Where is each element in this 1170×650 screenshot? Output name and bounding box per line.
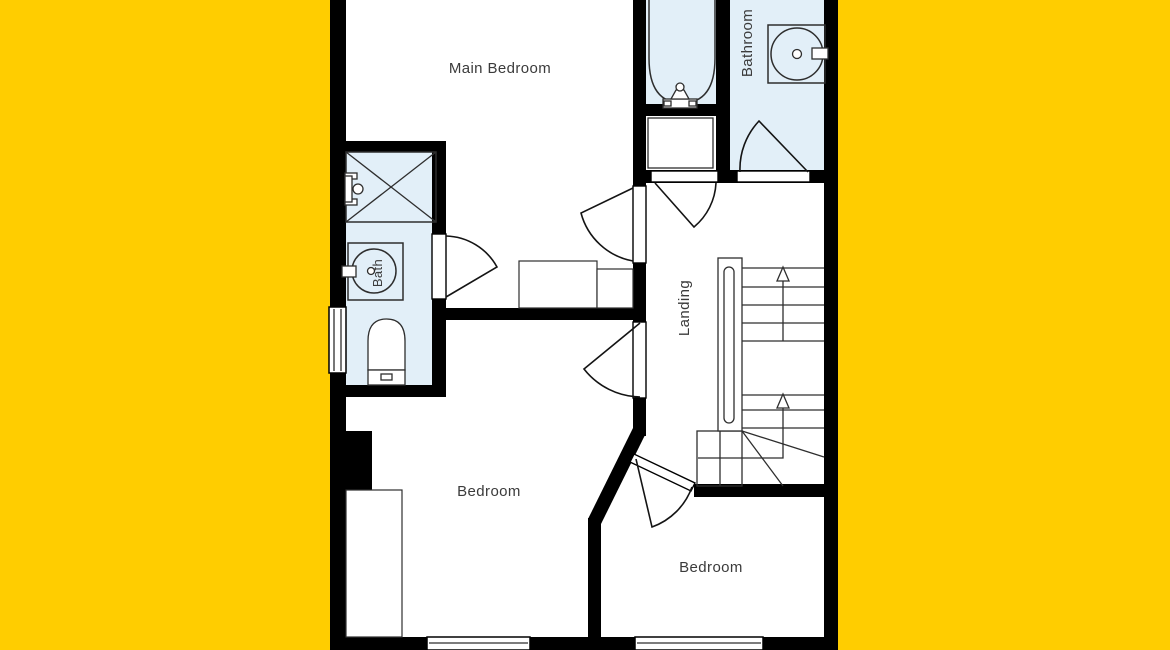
ensuite-door-threshold	[432, 234, 446, 299]
landing-label: Landing	[676, 280, 693, 336]
wardrobe-icon	[346, 490, 402, 637]
furniture-chest	[519, 261, 597, 308]
wall-bath-top	[330, 141, 446, 152]
chimney-breast	[330, 431, 372, 490]
furniture-cabinet	[597, 269, 633, 308]
bedroom-center-label: Bedroom	[457, 483, 521, 500]
bedroom-center-door-threshold	[633, 322, 646, 398]
floorplan-canvas: Main Bedroom Bathroom Bath Landing Bedro…	[0, 0, 1170, 650]
bedroom-right-window-icon	[635, 637, 763, 650]
main-bedroom-label: Main Bedroom	[449, 60, 551, 77]
main-bedroom-door-threshold	[633, 186, 646, 263]
wall-right-outer	[824, 0, 838, 650]
bathroom-label: Bathroom	[739, 9, 756, 77]
bathroom-door-threshold	[737, 171, 810, 182]
floorplan: Main Bedroom Bathroom Bath Landing Bedro…	[329, 0, 838, 650]
wall-bedrooms-divider	[588, 518, 601, 650]
ensuite-window-icon	[329, 307, 346, 373]
wall-bedroom-top	[432, 308, 645, 320]
cupboard-door-threshold	[651, 171, 718, 182]
bedroom-center-window-icon	[427, 637, 530, 650]
wall-bath-south	[330, 385, 446, 397]
bath-label: Bath	[370, 259, 385, 287]
toilet-icon	[368, 319, 405, 385]
stairs-handrail	[718, 258, 742, 431]
bedroom-right-label: Bedroom	[679, 559, 743, 576]
wall-tub-east	[716, 0, 730, 183]
